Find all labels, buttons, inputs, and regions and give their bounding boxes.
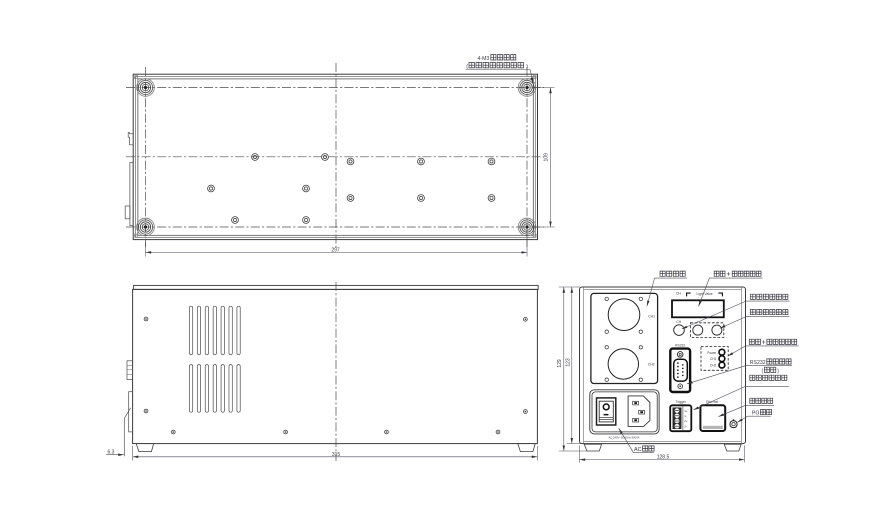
svg-text:): ) [526, 64, 528, 70]
svg-text:CH1: CH1 [710, 357, 717, 361]
svg-text:315: 315 [332, 452, 341, 458]
svg-text:297: 297 [331, 248, 340, 254]
svg-text:Light Value: Light Value [696, 292, 712, 296]
svg-text:Trigger: Trigger [676, 400, 687, 404]
svg-text:1+: 1+ [684, 409, 688, 413]
svg-text:): ) [777, 368, 779, 374]
svg-text:Power: Power [707, 351, 717, 355]
svg-text:109: 109 [544, 153, 550, 162]
svg-text:4-M3: 4-M3 [478, 56, 490, 62]
svg-text:(: ( [762, 368, 764, 374]
svg-text:1-: 1- [684, 414, 687, 418]
svg-text:RS232: RS232 [750, 360, 766, 366]
svg-text:CH1: CH1 [648, 314, 655, 318]
svg-text:(: ( [466, 64, 468, 70]
svg-text:129: 129 [557, 359, 563, 368]
svg-text:2-: 2- [684, 424, 687, 428]
svg-text:2+: 2+ [684, 419, 688, 423]
svg-text:CH: CH [676, 292, 681, 296]
svg-text:CH2: CH2 [648, 362, 655, 366]
svg-text:PG: PG [752, 411, 760, 417]
svg-text:128.5: 128.5 [657, 454, 670, 460]
svg-text:123: 123 [565, 358, 571, 367]
svg-text:AC: AC [634, 447, 642, 453]
svg-text:RS232: RS232 [675, 344, 685, 348]
svg-text:CH: CH [676, 320, 681, 324]
svg-text:CH2: CH2 [710, 363, 717, 367]
